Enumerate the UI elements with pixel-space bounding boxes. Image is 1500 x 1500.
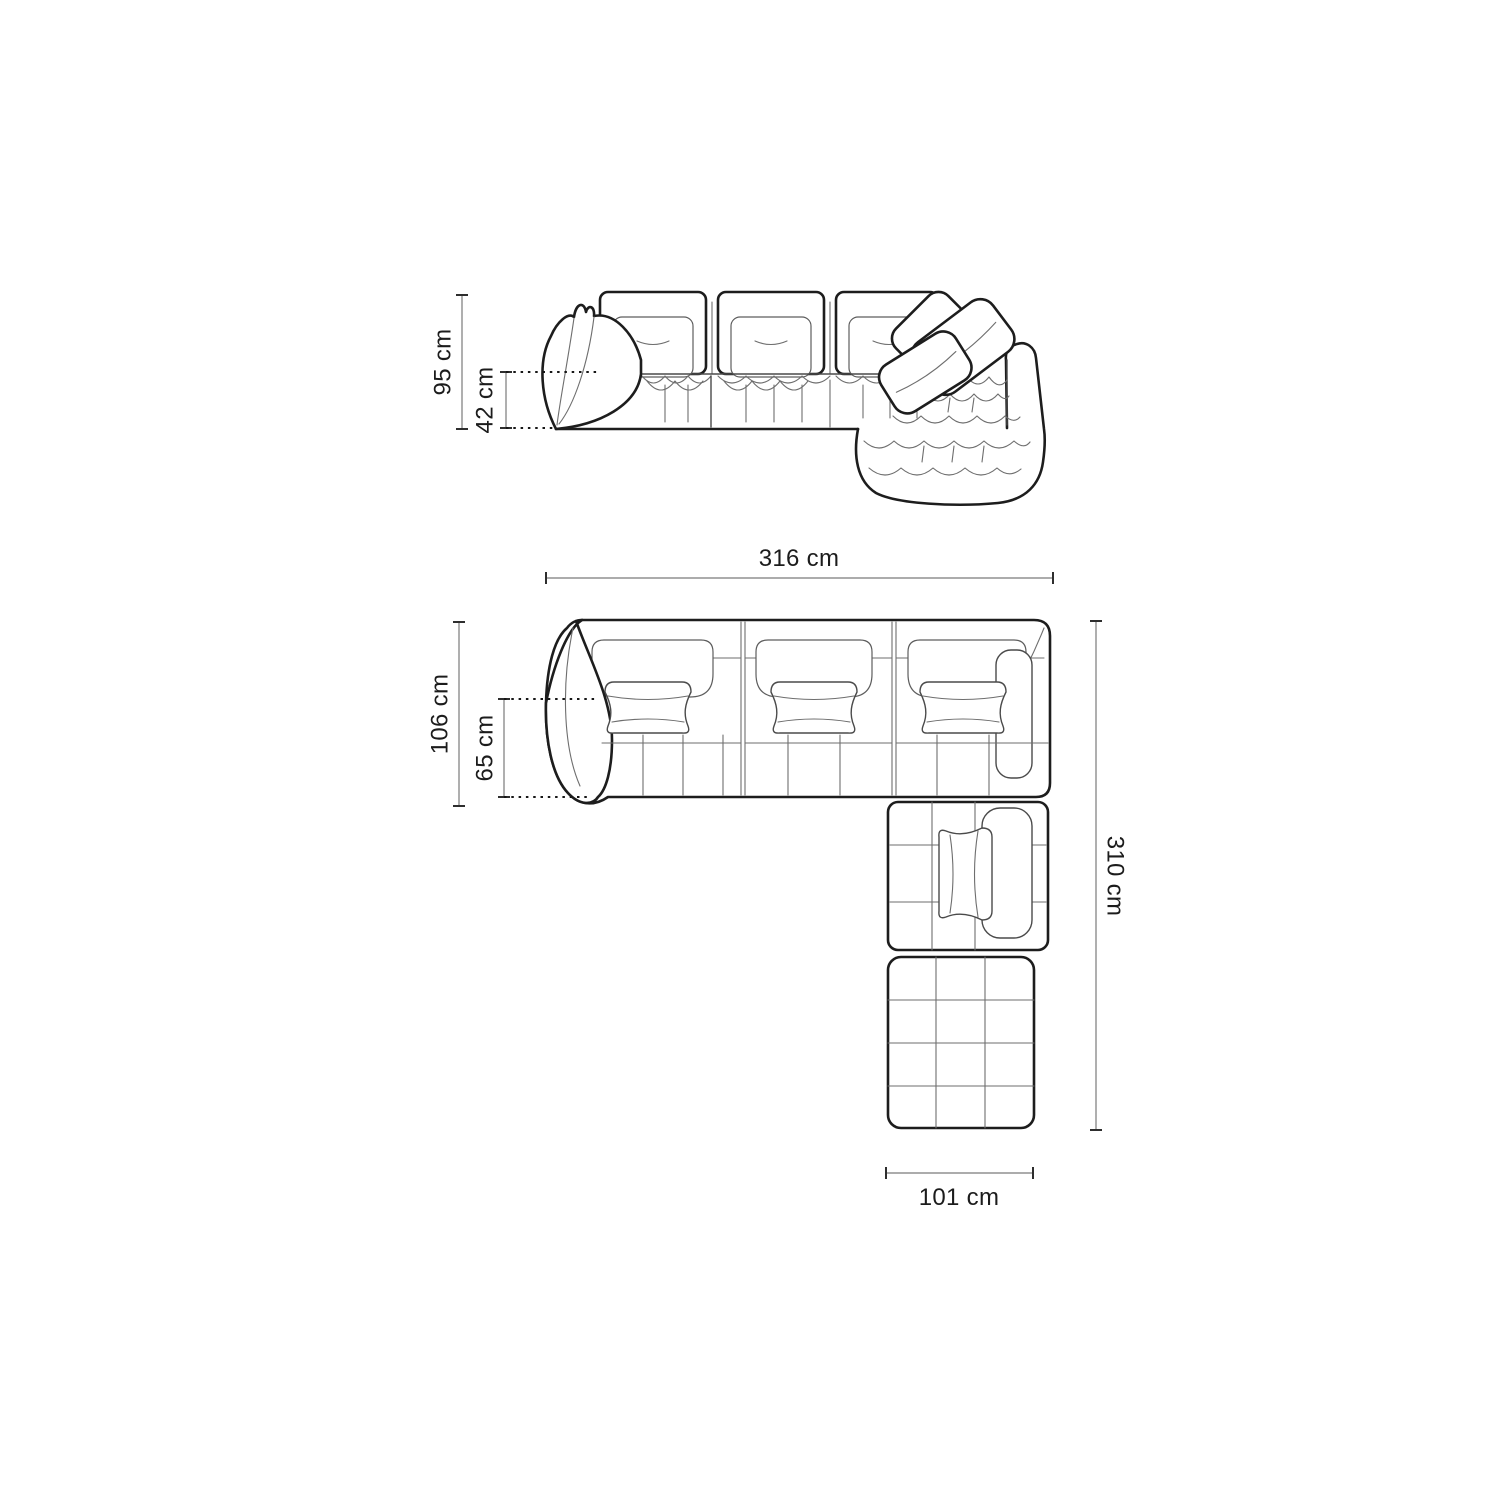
plan-width-label: 316 cm — [759, 545, 840, 572]
plan-depth-label: 106 cm — [426, 674, 453, 755]
plan-dimension-chaise-width: 101 cm — [886, 1167, 1033, 1211]
plan-dimension-depth: 106 cm — [426, 622, 465, 806]
plan-view: 316 cm 106 cm 65 cm 310 cm 101 cm — [426, 545, 1128, 1211]
front-view: 95 cm 42 cm — [429, 286, 1044, 505]
sofa-dimension-diagram-page: 95 cm 42 cm — [0, 0, 1500, 1500]
plan-sofa-drawing — [546, 620, 1050, 1128]
plan-seat-pillows — [605, 682, 1006, 733]
plan-dimension-width: 316 cm — [546, 545, 1053, 584]
sofa-dimension-diagram: 95 cm 42 cm — [0, 0, 1500, 1500]
front-seat-height-label: 42 cm — [471, 367, 498, 434]
front-dimension-height: 95 cm — [429, 295, 468, 429]
plan-chaise-pillow — [939, 828, 992, 920]
plan-corner-bolster — [996, 650, 1032, 778]
plan-dimension-total-depth: 310 cm — [1090, 621, 1129, 1130]
front-height-label: 95 cm — [429, 329, 456, 396]
plan-seat-depth-label: 65 cm — [471, 715, 498, 782]
plan-chaise-width-label: 101 cm — [919, 1184, 1000, 1211]
plan-total-depth-label: 310 cm — [1102, 836, 1129, 917]
front-sofa-drawing — [542, 286, 1044, 505]
